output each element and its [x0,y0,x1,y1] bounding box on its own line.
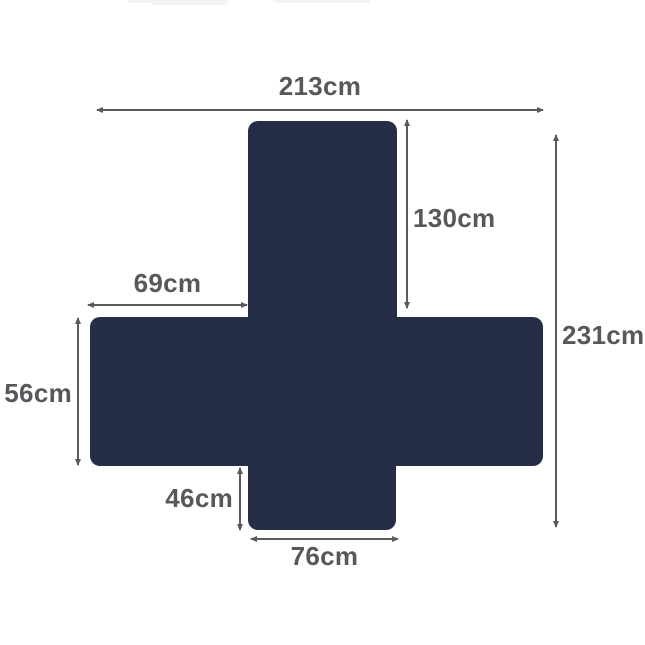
cover-shape-middle-section [90,317,543,466]
cover-shape-upper-section [248,121,397,320]
left-arm-width-dimension-label: 69cm [88,268,247,299]
left-arm-width-dimension-line [88,304,247,306]
cropped-watermark-artifact [152,3,228,5]
cover-shape-lower-section [248,463,396,530]
lower-height-dimension-label: 46cm [156,483,233,514]
bottom-width-dimension-line [251,538,398,540]
side-height-dimension-line [77,318,79,465]
upper-height-dimension-line [406,120,408,308]
overall-height-dimension-label: 231cm [562,320,644,351]
top-width-dimension-label: 213cm [97,71,543,102]
cropped-watermark-artifact [275,0,370,3]
upper-height-dimension-label: 130cm [413,203,495,234]
overall-height-dimension-line [555,135,557,527]
top-width-dimension-line [97,109,543,111]
lower-height-dimension-line [239,468,241,530]
side-height-dimension-label: 56cm [2,378,72,409]
dimension-diagram: 213cm 130cm 69cm 231cm 56cm 46cm 76cm [0,0,645,645]
bottom-width-dimension-label: 76cm [251,541,398,572]
